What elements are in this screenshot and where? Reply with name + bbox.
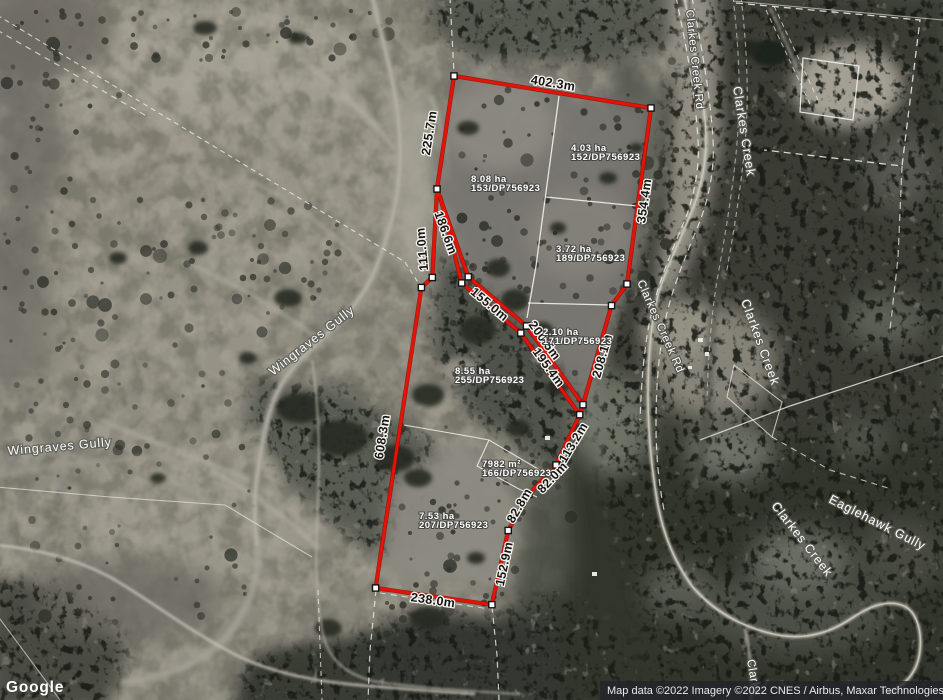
- svg-text:166/DP756923: 166/DP756923: [482, 468, 551, 479]
- svg-text:153/DP756923: 153/DP756923: [471, 183, 540, 194]
- svg-text:152/DP756923: 152/DP756923: [571, 152, 640, 163]
- svg-text:171/DP756923: 171/DP756923: [543, 336, 612, 347]
- svg-text:Google: Google: [6, 679, 64, 696]
- svg-text:207/DP756923: 207/DP756923: [419, 520, 488, 531]
- svg-text:255/DP756923: 255/DP756923: [455, 375, 524, 386]
- svg-text:Map data ©2022 Imagery ©2022 C: Map data ©2022 Imagery ©2022 CNES / Airb…: [607, 685, 943, 697]
- svg-text:189/DP756923: 189/DP756923: [556, 253, 625, 264]
